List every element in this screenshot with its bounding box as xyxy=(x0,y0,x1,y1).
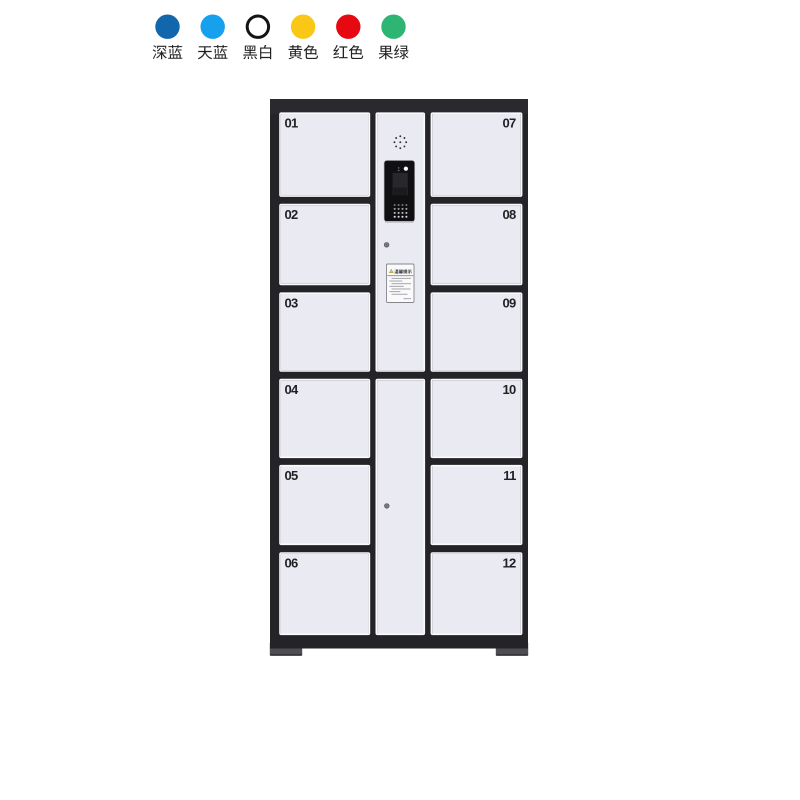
svg-text:05: 05 xyxy=(285,468,299,483)
svg-text:02: 02 xyxy=(285,207,299,222)
svg-text:07: 07 xyxy=(503,116,517,131)
svg-text:06: 06 xyxy=(285,555,299,570)
svg-text:09: 09 xyxy=(503,296,517,311)
svg-text:04: 04 xyxy=(285,382,300,397)
svg-text:10: 10 xyxy=(503,382,517,397)
svg-text:11: 11 xyxy=(503,468,516,483)
svg-text:08: 08 xyxy=(503,207,517,222)
svg-text:03: 03 xyxy=(285,296,299,311)
svg-text:12: 12 xyxy=(503,555,517,570)
svg-text:01: 01 xyxy=(285,116,299,131)
